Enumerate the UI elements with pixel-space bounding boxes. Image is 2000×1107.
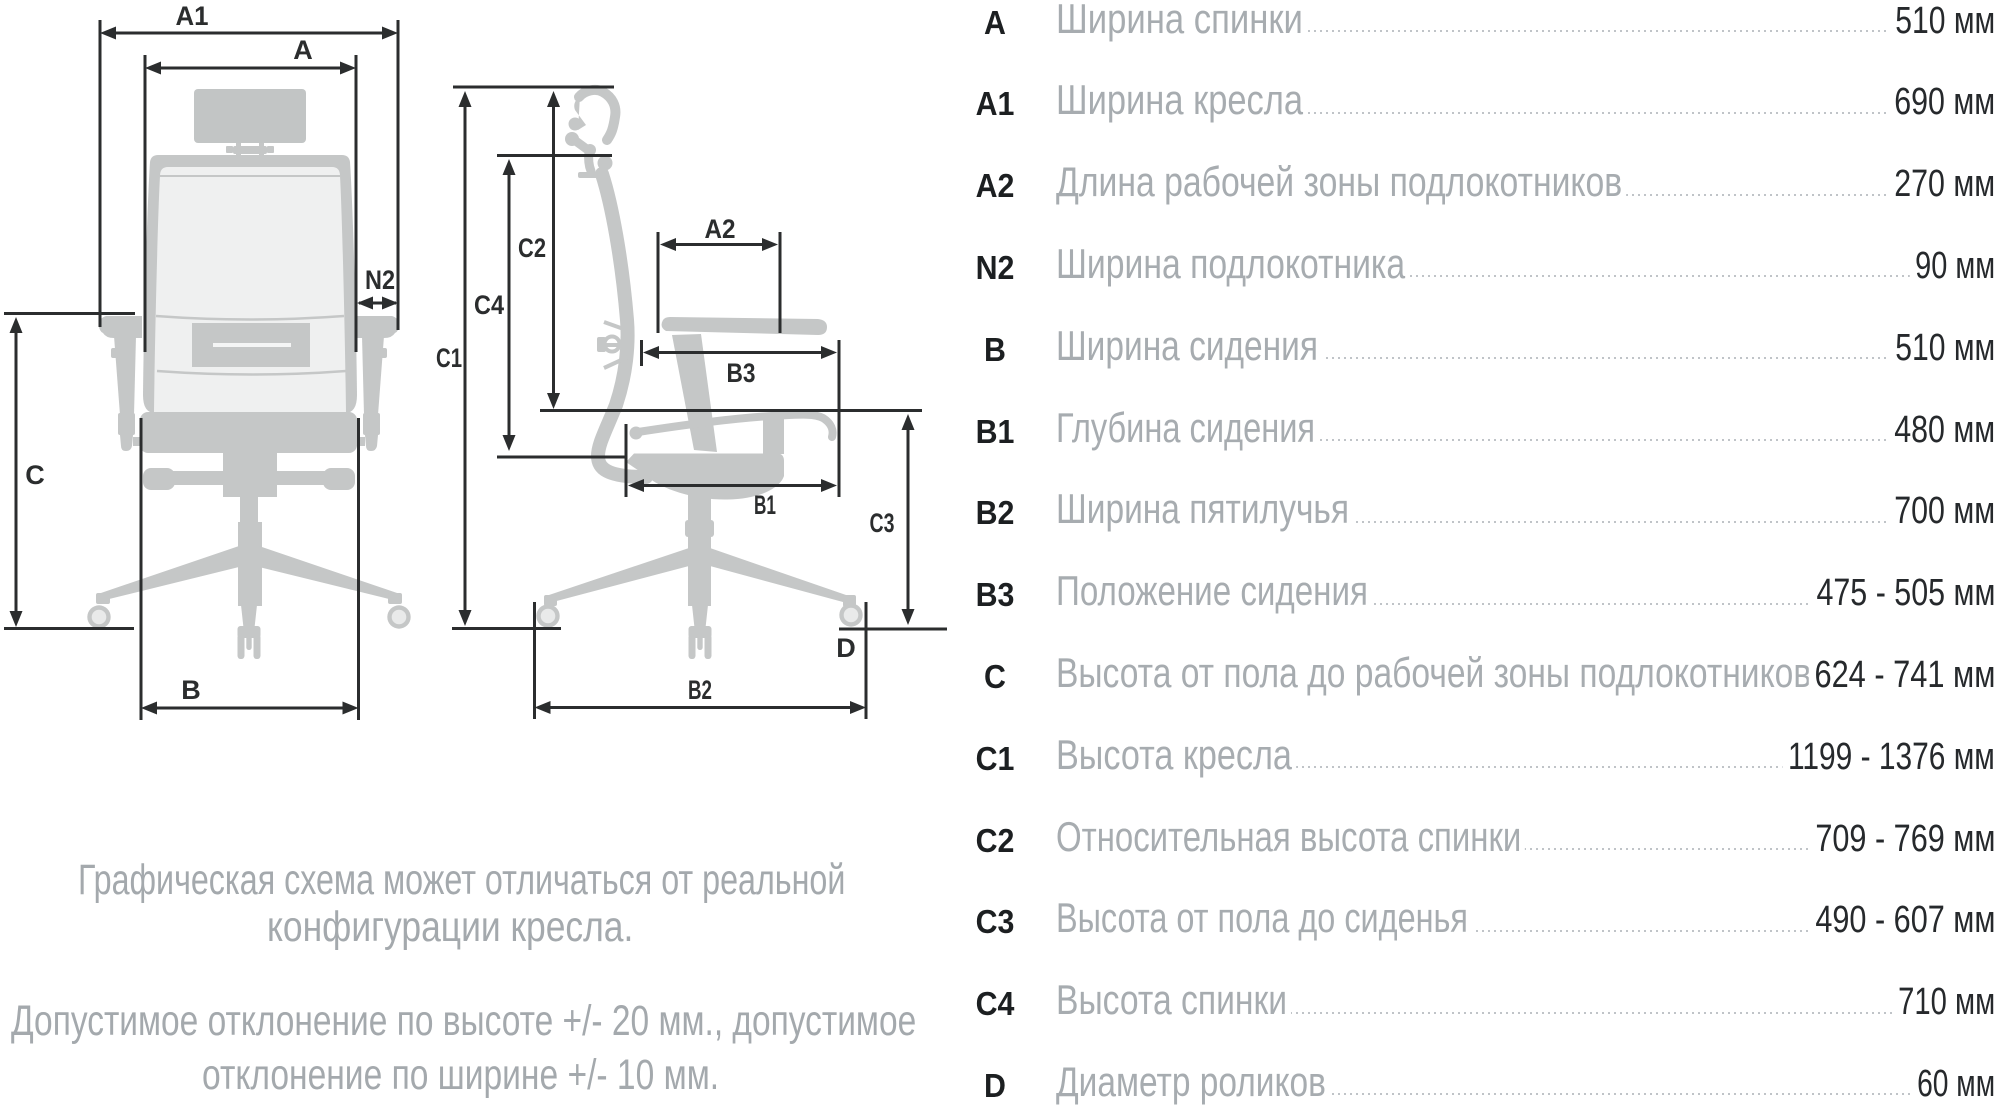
svg-text:B: B: [181, 675, 201, 705]
svg-text:C3: C3: [870, 508, 895, 538]
svg-text:N2: N2: [365, 265, 395, 295]
svg-text:C: C: [25, 460, 45, 490]
svg-text:C1: C1: [436, 343, 462, 373]
svg-text:B1: B1: [754, 490, 776, 520]
svg-text:B2: B2: [688, 675, 712, 705]
svg-text:B3: B3: [727, 358, 756, 388]
svg-text:A1: A1: [176, 1, 209, 31]
svg-text:A: A: [293, 35, 313, 65]
svg-text:C2: C2: [518, 233, 546, 263]
svg-text:A2: A2: [705, 214, 736, 244]
svg-text:C4: C4: [474, 290, 504, 320]
svg-text:D: D: [836, 633, 856, 663]
